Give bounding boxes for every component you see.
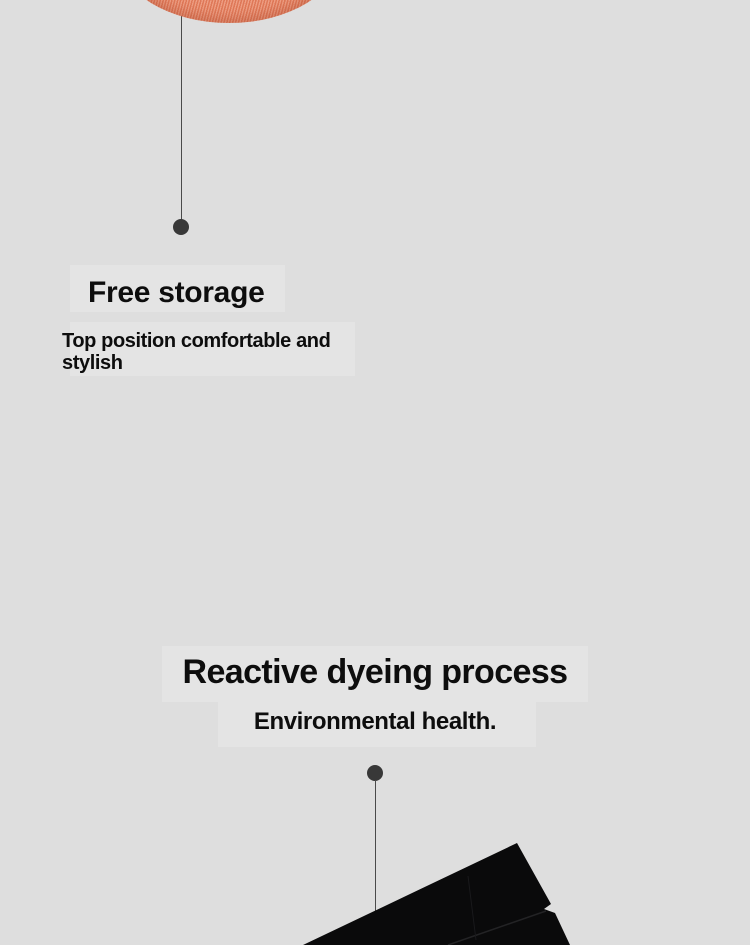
section-title-reactive-dyeing: Reactive dyeing process	[0, 650, 750, 694]
callout-line-top	[181, 0, 182, 220]
callout-line-bottom	[375, 780, 376, 915]
black-garment-silhouette	[303, 843, 570, 945]
callout-dot-icon	[173, 219, 189, 235]
garment-seam-line	[468, 876, 476, 940]
section-subtitle-free-storage: Top position comfortable and stylish	[62, 330, 352, 374]
garment-seam-line	[448, 911, 546, 945]
section-title-free-storage: Free storage	[88, 273, 264, 313]
orange-fabric-swatch	[119, 0, 339, 23]
callout-dot-icon	[367, 765, 383, 781]
product-description-page: Free storage Top position comfortable an…	[0, 0, 750, 945]
section-subtitle-reactive-dyeing: Environmental health.	[0, 706, 750, 738]
